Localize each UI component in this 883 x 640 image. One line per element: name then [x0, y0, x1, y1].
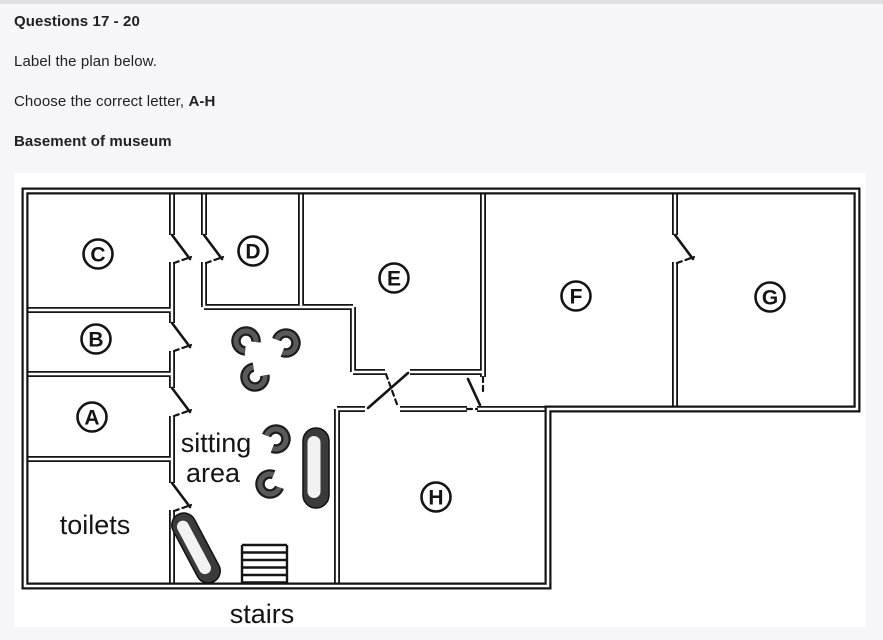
sofa-icon [168, 509, 225, 587]
room-letter-text: H [428, 487, 443, 510]
room-label-F: F [562, 282, 591, 311]
room-label-C: C [84, 240, 113, 269]
outer-walls [25, 191, 857, 586]
room-letter-text: E [387, 268, 401, 291]
basement-floor-plan: C D E F G B A H sitting [14, 173, 866, 627]
room-letter-text: F [570, 286, 583, 309]
room-label-B: B [82, 325, 111, 354]
room-letter-text: D [245, 241, 260, 264]
room-label-A: A [78, 403, 107, 432]
chair-icon [263, 426, 289, 452]
stairs-label: stairs [230, 599, 295, 627]
room-letter-text: G [762, 287, 778, 310]
room-letter-text: B [88, 329, 103, 352]
chair-icon [273, 330, 299, 356]
room-label-E: E [380, 264, 409, 293]
stairs-icon [242, 545, 287, 583]
plan-title: Basement of museum [14, 133, 869, 151]
room-letter-text: C [90, 244, 105, 267]
instruction-choose-letter-text: Choose the correct letter, [14, 93, 188, 110]
room-label-H: H [422, 483, 451, 512]
question-header: Questions 17 - 20 Label the plan below. … [0, 4, 883, 151]
sitting-area-label-line1: sitting [181, 428, 252, 458]
letter-range: A-H [188, 93, 215, 110]
plan-image-container: C D E F G B A H sitting [14, 173, 866, 627]
questions-range-title: Questions 17 - 20 [14, 13, 869, 31]
chair-icon [235, 330, 257, 352]
sofa-icon [303, 428, 329, 508]
room-label-D: D [239, 237, 268, 266]
sitting-area-label-line2: area [186, 458, 241, 488]
chair-icon [243, 365, 266, 388]
chair-icon [257, 471, 283, 497]
instruction-choose-letter: Choose the correct letter, A-H [14, 93, 869, 111]
room-label-G: G [756, 283, 785, 312]
instruction-label-plan: Label the plan below. [14, 53, 869, 71]
room-letter-text: A [84, 407, 99, 430]
toilets-label: toilets [60, 510, 131, 540]
